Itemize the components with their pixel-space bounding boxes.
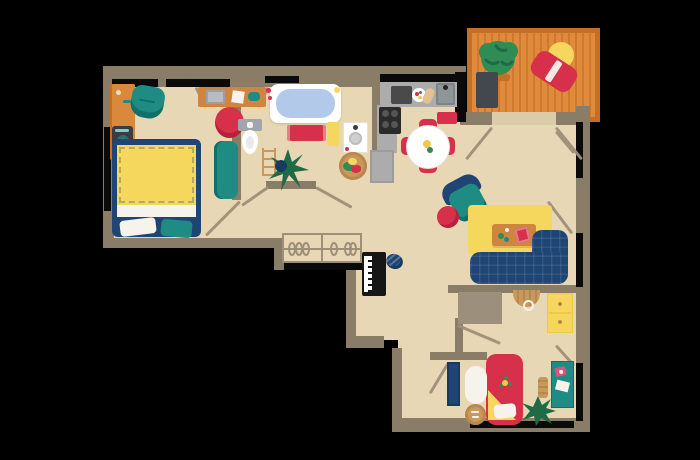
wall-closet-under (284, 262, 364, 270)
pink-item-dot (559, 370, 564, 375)
wall-wing-left (392, 348, 402, 426)
kitchen-sink (436, 83, 455, 105)
laundry-red (351, 165, 361, 173)
window-top-2 (166, 79, 230, 87)
pillow (493, 403, 516, 419)
stool-stitch (472, 416, 479, 418)
table-cup (505, 228, 509, 232)
bathtub-water (276, 89, 335, 118)
wall-bedroom2-inner (430, 352, 487, 360)
potted-plant (268, 148, 310, 192)
basket-handle (523, 300, 534, 311)
knob (558, 320, 562, 324)
blanket-stitch (119, 147, 194, 203)
stove (379, 107, 401, 134)
balcony-door-opening (492, 112, 556, 125)
food-dot (419, 91, 422, 94)
flower-decoration (502, 380, 508, 386)
toilet-bowl-inner (246, 136, 254, 149)
cutting-board (391, 86, 412, 104)
window-top-3 (265, 76, 299, 83)
shelf-item (116, 90, 121, 95)
laundry-basket (339, 152, 367, 180)
burner (382, 110, 389, 117)
paper-sheet (231, 90, 245, 104)
wooden-chair (538, 377, 548, 398)
faucet-icon (353, 125, 358, 130)
single-bed (486, 354, 523, 425)
bath-mat (290, 125, 323, 141)
table-plant (427, 147, 433, 153)
sink-unit (343, 122, 368, 153)
window-right-3 (576, 363, 583, 421)
lounge-chair-stripe (544, 60, 562, 83)
outdoor-mat (476, 72, 498, 108)
basket-stool (465, 404, 486, 425)
towel (327, 122, 339, 146)
bathtub (270, 84, 341, 123)
armchair-seam (139, 99, 155, 104)
burner (391, 110, 398, 117)
white-rug (465, 366, 487, 404)
knob (558, 302, 562, 306)
kitchen-door-mat (437, 112, 457, 124)
soap-dot (345, 147, 349, 151)
table-plant (504, 237, 509, 242)
open-closet-hangers (282, 233, 362, 263)
desk-pink-item (554, 366, 567, 377)
desk-paper (555, 380, 570, 393)
teal-bench (214, 141, 238, 199)
wall-desk (198, 87, 266, 107)
sofa-seat (470, 252, 568, 284)
stool-stitch (471, 411, 479, 413)
laundry-yellow (348, 158, 357, 165)
soap-red (268, 96, 272, 100)
faucet-icon (443, 85, 448, 90)
wall-corridor-end (346, 336, 384, 348)
book (514, 227, 530, 244)
pillow-teal (160, 219, 192, 239)
soap-red (266, 88, 271, 93)
bedroom2-desk (551, 361, 574, 408)
laptop (206, 90, 225, 104)
yellow-sideboard (547, 293, 573, 333)
burner (391, 121, 398, 128)
notebook (248, 92, 260, 101)
built-in-closet (458, 292, 502, 324)
burner (382, 121, 389, 128)
wall-bedroom1-bottom (103, 238, 284, 248)
bed-sheet-stripe (117, 205, 196, 217)
window-right-1 (576, 122, 583, 178)
flush-button (247, 122, 253, 128)
bookshelf (447, 362, 460, 406)
pillow-white (119, 217, 157, 237)
sideboard-divider (549, 312, 571, 314)
piano-black-keys (368, 256, 372, 292)
floor-plan (0, 0, 700, 460)
sponge-yellow (334, 87, 340, 93)
dining-table (407, 126, 449, 168)
upright-piano (362, 252, 386, 296)
pouf (437, 206, 459, 228)
sink-basin (349, 132, 362, 145)
double-bed (112, 139, 201, 237)
coffee-table (492, 224, 536, 246)
yellow-blanket (117, 145, 196, 205)
dishwasher-counter (370, 150, 394, 183)
washer-panel (115, 129, 129, 132)
window-right-2 (576, 233, 583, 287)
